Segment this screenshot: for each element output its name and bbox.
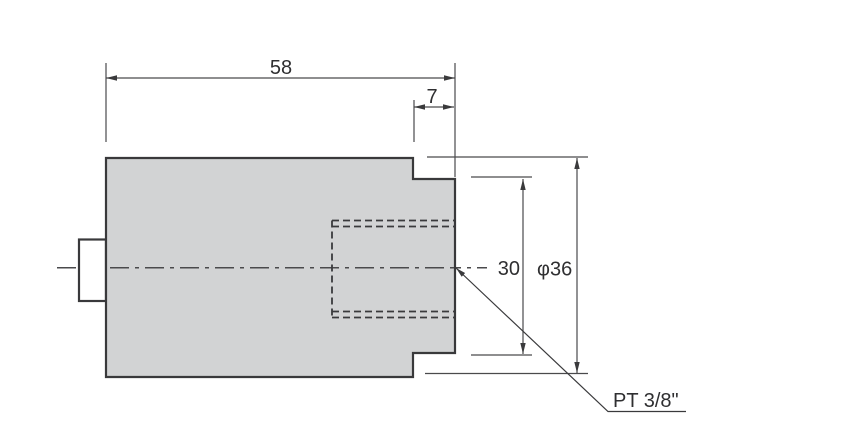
dim-label-30: 30 bbox=[498, 258, 520, 280]
dim-step-length: 7 bbox=[414, 86, 454, 142]
arrowhead-bottom bbox=[520, 343, 525, 354]
thread-callout: PT 3/8" bbox=[456, 268, 686, 412]
dim-step-diameter: 30 bbox=[471, 177, 532, 355]
thread-label: PT 3/8" bbox=[613, 390, 679, 412]
arrowhead-left bbox=[106, 75, 117, 80]
arrowhead-top bbox=[520, 179, 525, 190]
arrowhead-top bbox=[574, 158, 579, 169]
dim-label-phi36: φ36 bbox=[537, 259, 572, 281]
dim-label-58: 58 bbox=[270, 57, 292, 79]
arrowhead-left bbox=[414, 104, 425, 109]
arrowhead-bottom bbox=[574, 362, 579, 373]
left-stub bbox=[79, 240, 106, 302]
arrowhead-right bbox=[443, 104, 454, 109]
technical-drawing: 58 7 30 φ36 bbox=[0, 0, 848, 447]
dim-label-7: 7 bbox=[426, 86, 437, 108]
drawing-svg: 58 7 30 φ36 bbox=[0, 0, 848, 447]
arrowhead-right bbox=[444, 75, 455, 80]
